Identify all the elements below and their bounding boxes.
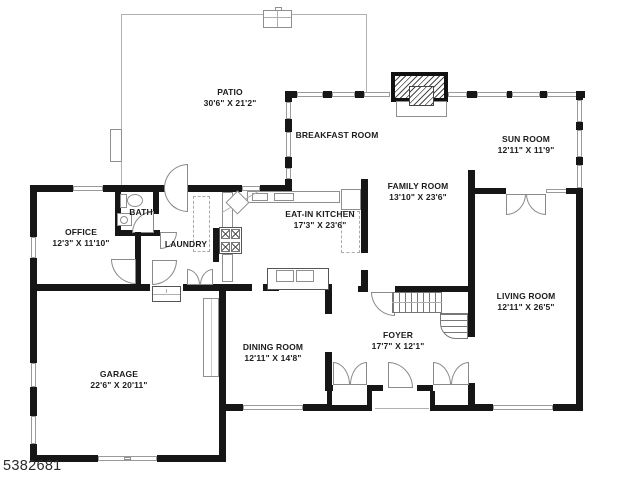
closet-door-arc bbox=[333, 362, 350, 385]
room-name: FAMILY ROOM bbox=[388, 181, 449, 192]
garage-step-tick bbox=[166, 289, 167, 293]
french-door-arc bbox=[526, 194, 546, 215]
room-dims: 30'6" X 21'2" bbox=[204, 98, 257, 109]
toilet-icon bbox=[127, 194, 143, 207]
wall-segment bbox=[367, 391, 372, 405]
garage-storage-line bbox=[211, 299, 212, 376]
wall-segment bbox=[219, 404, 243, 411]
window bbox=[286, 132, 291, 157]
room-label-foyer: FOYER 17'7" X 12'1" bbox=[372, 330, 425, 352]
patio-swing-door bbox=[164, 164, 188, 212]
garage-storage bbox=[203, 298, 219, 377]
wall-segment bbox=[30, 291, 37, 363]
wall-segment bbox=[576, 157, 583, 165]
wall-segment bbox=[469, 385, 475, 391]
burner-icon bbox=[231, 229, 240, 239]
door-arc bbox=[111, 259, 136, 284]
room-label-bath: BATH bbox=[129, 207, 153, 218]
room-name: FOYER bbox=[372, 330, 425, 341]
window bbox=[332, 92, 355, 97]
room-name: BREAKFAST ROOM bbox=[296, 130, 379, 141]
wall-segment bbox=[323, 91, 332, 98]
wall-segment bbox=[576, 91, 583, 100]
island-seat bbox=[276, 270, 294, 282]
window bbox=[286, 168, 291, 179]
window bbox=[493, 405, 553, 410]
stairs-lower-run bbox=[440, 313, 468, 339]
patio-post bbox=[110, 129, 122, 162]
window bbox=[286, 102, 291, 119]
french-door-arc bbox=[506, 194, 526, 215]
wall-segment bbox=[576, 122, 583, 130]
window bbox=[512, 92, 540, 97]
wall-segment bbox=[430, 391, 435, 405]
window bbox=[547, 92, 577, 97]
grill-icon bbox=[263, 10, 292, 28]
room-name: OFFICE bbox=[52, 227, 109, 238]
room-label-living: LIVING ROOM 12'11" X 26'5" bbox=[497, 291, 556, 313]
room-label-laundry: LAUNDRY bbox=[165, 239, 207, 250]
closet-door-arc bbox=[433, 362, 451, 385]
grill-notch bbox=[275, 7, 282, 11]
stairs-rail bbox=[392, 302, 442, 303]
wall-segment bbox=[285, 91, 297, 98]
room-dims: 12'11" X 11'9" bbox=[498, 145, 555, 156]
window bbox=[577, 130, 582, 157]
window bbox=[477, 92, 507, 97]
wall-segment bbox=[430, 405, 475, 411]
wall-segment bbox=[327, 391, 332, 405]
window bbox=[31, 416, 36, 444]
grill-line-v bbox=[277, 11, 278, 27]
wall-segment bbox=[468, 170, 475, 337]
island-seat bbox=[296, 270, 314, 282]
wall-segment bbox=[475, 404, 493, 411]
wall-segment bbox=[540, 91, 547, 98]
window bbox=[31, 237, 36, 258]
room-label-family: FAMILY ROOM 13'10" X 23'6" bbox=[388, 181, 449, 203]
window bbox=[448, 92, 467, 97]
sink-icon bbox=[120, 216, 128, 224]
window bbox=[546, 189, 568, 193]
window bbox=[31, 363, 36, 387]
window bbox=[243, 405, 303, 410]
patio-outline-right bbox=[366, 14, 367, 92]
closet-door-arc bbox=[350, 362, 367, 385]
front-door-arc bbox=[388, 362, 413, 388]
room-name: BATH bbox=[129, 207, 153, 218]
room-dims: 17'3" X 23'6" bbox=[285, 220, 354, 231]
wall-segment bbox=[219, 284, 252, 291]
garage-steps bbox=[152, 286, 181, 302]
room-name: PATIO bbox=[204, 87, 257, 98]
room-name: SUN ROOM bbox=[498, 134, 555, 145]
porch-step bbox=[375, 408, 429, 409]
burner-icon bbox=[221, 229, 230, 239]
burner-icon bbox=[231, 242, 240, 252]
toilet-icon bbox=[120, 194, 127, 208]
wall-segment bbox=[467, 91, 477, 98]
garage-door-tick bbox=[124, 457, 131, 460]
wall-segment bbox=[327, 405, 372, 411]
firebox bbox=[409, 86, 434, 106]
wall-segment bbox=[576, 195, 583, 411]
closet-door-arc bbox=[187, 269, 200, 285]
wall-segment bbox=[30, 387, 37, 416]
room-dims: 22'6" X 20'11" bbox=[90, 380, 147, 391]
window bbox=[73, 186, 103, 191]
wall-segment bbox=[219, 284, 226, 462]
refrigerator-icon bbox=[341, 189, 361, 210]
window bbox=[577, 165, 582, 188]
room-name: DINING ROOM bbox=[243, 342, 303, 353]
wall-segment bbox=[157, 455, 226, 462]
room-label-dining: DINING ROOM 12'11" X 14'8" bbox=[243, 342, 303, 364]
room-name: EAT-IN KITCHEN bbox=[285, 209, 354, 220]
room-label-sunroom: SUN ROOM 12'11" X 11'9" bbox=[498, 134, 555, 156]
floor-plan: PATIO 30'6" X 21'2" BREAKFAST ROOM SUN R… bbox=[0, 0, 621, 480]
door-arc bbox=[152, 260, 177, 285]
wall-segment bbox=[30, 185, 37, 237]
wall-segment bbox=[30, 284, 150, 291]
room-dims: 12'11" X 26'5" bbox=[497, 302, 556, 313]
wall-segment bbox=[358, 286, 368, 292]
wall-segment bbox=[285, 157, 292, 168]
window bbox=[364, 92, 390, 97]
closet-door-arc bbox=[451, 362, 469, 385]
patio-outline-top bbox=[121, 14, 367, 15]
burner-icon bbox=[221, 242, 230, 252]
kitchen-counter bbox=[222, 254, 233, 282]
room-label-patio: PATIO 30'6" X 21'2" bbox=[204, 87, 257, 109]
wall-segment bbox=[361, 179, 368, 253]
wall-segment bbox=[285, 119, 292, 132]
kitchen-appliance bbox=[274, 193, 294, 201]
wall-segment bbox=[355, 91, 364, 98]
room-name: GARAGE bbox=[90, 369, 147, 380]
room-dims: 12'3" X 11'10" bbox=[52, 238, 109, 249]
room-label-office: OFFICE 12'3" X 11'10" bbox=[52, 227, 109, 249]
window bbox=[577, 100, 582, 122]
window bbox=[297, 92, 323, 97]
room-dims: 17'7" X 12'1" bbox=[372, 341, 425, 352]
wall-segment bbox=[103, 185, 165, 192]
room-dims: 13'10" X 23'6" bbox=[388, 192, 449, 203]
closet-door-arc bbox=[200, 269, 213, 285]
wall-segment bbox=[188, 185, 242, 192]
room-name: LAUNDRY bbox=[165, 239, 207, 250]
room-label-kitchen: EAT-IN KITCHEN 17'3" X 23'6" bbox=[285, 209, 354, 231]
wall-segment bbox=[566, 188, 583, 194]
listing-id: 5382681 bbox=[3, 458, 62, 474]
room-label-breakfast: BREAKFAST ROOM bbox=[296, 130, 379, 141]
room-dims: 12'11" X 14'8" bbox=[243, 353, 303, 364]
garage-step-line bbox=[153, 294, 180, 295]
room-label-garage: GARAGE 22'6" X 20'11" bbox=[90, 369, 147, 391]
wall-segment bbox=[553, 404, 583, 411]
room-name: LIVING ROOM bbox=[497, 291, 556, 302]
